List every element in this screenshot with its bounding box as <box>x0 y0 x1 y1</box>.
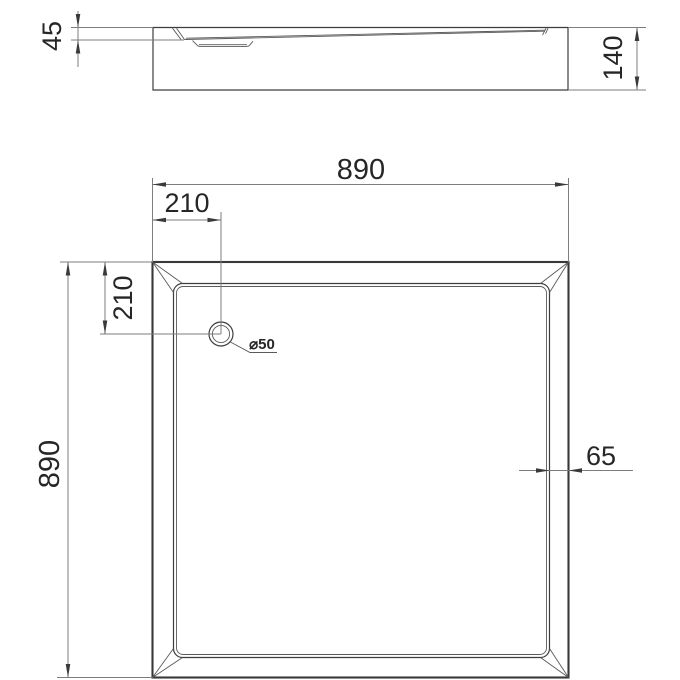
side-view-floor-line2 <box>186 30 545 38</box>
arrow-left-icon <box>153 182 167 187</box>
dimension-rim-height: 45 <box>37 11 184 67</box>
arrow-up-icon <box>66 262 71 276</box>
drain-offset-x-label: 210 <box>164 188 209 218</box>
side-view-outline <box>153 28 568 91</box>
total-height-label: 140 <box>598 35 628 80</box>
plan-view: ⌀50 <box>153 262 569 678</box>
side-view-rim-left-line2 <box>177 28 185 39</box>
side-view-rim-right-line <box>543 28 547 35</box>
dimension-overall-width: 890 <box>153 154 569 262</box>
border-width-label: 65 <box>586 441 616 471</box>
arrow-right-icon <box>555 182 569 187</box>
arrow-right-icon <box>208 218 222 223</box>
side-view-rim-left-line <box>173 28 182 39</box>
side-view-floor-line <box>185 31 546 39</box>
arrow-up-icon <box>76 40 81 54</box>
side-view <box>153 28 568 91</box>
arrow-down-icon <box>103 321 108 335</box>
technical-drawing-page: 45 140 ⌀50 890 <box>0 0 680 680</box>
drain-diameter-label: ⌀50 <box>249 336 275 353</box>
overall-length-label: 890 <box>34 440 66 488</box>
side-view-drain-recess <box>193 41 254 47</box>
arrow-left-icon <box>569 468 583 473</box>
dimension-total-height: 140 <box>568 28 646 91</box>
arrow-down-icon <box>66 664 71 678</box>
dimension-border-width: 65 <box>519 441 633 473</box>
arrow-up-icon <box>103 262 108 276</box>
arrow-up-icon <box>635 28 640 42</box>
drain-offset-y-label: 210 <box>108 275 138 320</box>
plan-inner-rim-outer-line <box>174 284 550 658</box>
plan-inner-rim-inner-line <box>177 287 547 655</box>
dimension-overall-length: 890 <box>34 262 153 678</box>
arrow-down-icon <box>635 77 640 91</box>
arrow-right-icon <box>536 468 550 473</box>
dimension-drain-offset-y: 210 <box>100 262 221 334</box>
corner-mitre-top-left <box>153 262 183 293</box>
arrow-left-icon <box>153 218 167 223</box>
corner-mitre-bottom-left <box>153 649 183 678</box>
overall-width-label: 890 <box>337 154 385 186</box>
drawing-canvas: 45 140 ⌀50 890 <box>0 0 680 680</box>
arrow-down-icon <box>76 14 81 28</box>
rim-height-label: 45 <box>37 21 67 51</box>
